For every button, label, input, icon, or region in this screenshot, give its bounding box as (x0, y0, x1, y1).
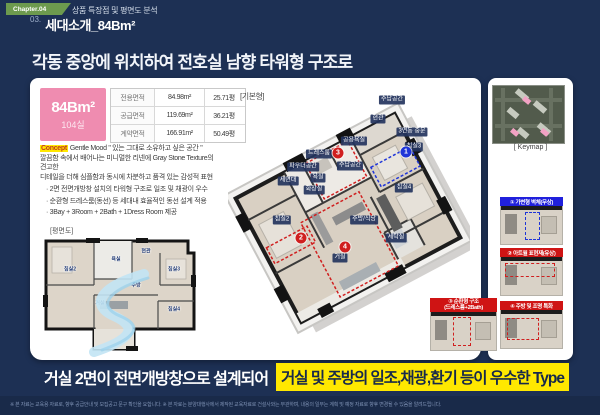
keymap-drawing (493, 86, 564, 143)
room-label-2d: 거실 (95, 300, 104, 307)
concept-lines: 깔끔함 속에서 배어나는 미니멀한 리넨에 Gray Stone Texture… (40, 154, 258, 183)
concept-tag: Concept (40, 145, 68, 152)
number-badge: 2 (296, 233, 307, 244)
callout-4: ④ 주방 및 조명 특화 (500, 301, 563, 349)
concept-first-line: ConceptGentle Mood " 있는 그대로 소유하고 싶은 공간 " (40, 144, 258, 154)
area-row: 계약면적 166.91m² 50.49평 (111, 124, 245, 142)
room-label-2d: 주방 (131, 282, 140, 289)
section-title: 세대소개_84Bm² (45, 18, 135, 33)
callout-4-title: ④ 주방 및 조명 특화 (500, 301, 563, 310)
room-label-2d: 현관 (141, 248, 150, 255)
slide-headline: 각동 중앙에 위치하여 전호실 남향 타워형 구조로 (32, 48, 352, 73)
bottom-summary-plain: 거실 2면이 전면개방창으로 설계되어 (44, 365, 268, 389)
callout-4-thumbnail (500, 310, 563, 349)
area-table: 전용면적 84.98m² 25.71평 공급면적 119.69m² 36.21평… (110, 88, 246, 143)
concept-line: 견고한 (40, 163, 258, 173)
area-row: 전용면적 84.98m² 25.71평 (111, 89, 245, 106)
area-sqm: 119.69m² (155, 107, 205, 124)
area-label: 전용면적 (111, 89, 155, 106)
slide: Chapter.04 상품 특장점 및 평면도 분석 03.세대소개_84Bm²… (0, 0, 600, 415)
concept-block: ConceptGentle Mood " 있는 그대로 소유하고 싶은 공간 "… (40, 144, 258, 218)
number-badge: 1 (401, 147, 412, 158)
side-panel: [ Keymap ] ① 가변형 벽체(무상) ② 아트월 표현재(유상) ④ … (488, 78, 573, 360)
concept-bullet: · 2면 전면개방창 설치의 타워형 구조로 일조 및 채광이 우수 (46, 185, 258, 195)
callout-1: ① 가변형 벽체(무상) (500, 197, 563, 245)
area-row: 공급면적 119.69m² 36.21평 (111, 106, 245, 124)
floorplan-2d-labels: 침실2욕실현관침실3주방거실침실4 (36, 235, 202, 357)
concept-bullet: · 순환형 드레스룸(동선) 등 세대내 효율적인 동선 설계 적용 (46, 197, 258, 207)
callout-2-thumbnail (500, 257, 563, 296)
section-heading: 03.세대소개_84Bm² (30, 15, 135, 35)
keymap-caption: [ Keymap ] (488, 144, 573, 151)
footer-disclaimer: ※ 본 자료는 교육용 자료로, 향후 공급안내 및 모집공고 문구 확인을 요… (10, 401, 594, 408)
callout-3: ③ 순환형 구조 (드레스룸+2Bath) (430, 298, 497, 351)
callout-3-title: ③ 순환형 구조 (드레스룸+2Bath) (430, 298, 497, 312)
callout-1-thumbnail (500, 206, 563, 245)
floorplan-2d: 침실2욕실현관침실3주방거실침실4 (36, 235, 202, 357)
main-panel: 84Bm² 104실 전용면적 84.98m² 25.71평 공급면적 119.… (30, 78, 481, 360)
number-badge: 4 (340, 242, 351, 253)
bottom-summary: 거실 2면이 전면개방창으로 설계되어 거실 및 주방의 일조,채광,환기 등이… (44, 363, 569, 391)
keymap-image (492, 85, 565, 144)
concept-head: Gentle Mood " 있는 그대로 소유하고 싶은 공간 " (70, 145, 202, 152)
room-label-2d: 침실4 (168, 306, 180, 313)
unit-name: 84Bm² (51, 99, 94, 116)
room-label-2d: 침실3 (168, 266, 180, 273)
bottom-summary-highlight: 거실 및 주방의 일조,채광,환기 등이 우수한 Type (276, 363, 569, 391)
number-badge: 3 (333, 148, 344, 159)
concept-bullet: · 3Bay + 3Room + 2Bath + 1Dress Room 제공 (46, 208, 258, 218)
room-label-2d: 침실2 (64, 266, 76, 273)
callout-3-title-line2: (드레스룸+2Bath) (444, 305, 483, 312)
room-label-2d: 욕실 (111, 256, 120, 263)
callout-3-thumbnail (430, 312, 497, 351)
area-label: 계약면적 (111, 125, 155, 142)
section-number: 03. (30, 15, 41, 24)
callout-2: ② 아트월 표현재(유상) (500, 248, 563, 296)
chapter-badge: Chapter.04 (6, 3, 71, 15)
area-sqm: 84.98m² (155, 89, 205, 106)
concept-line: 깔끔함 속에서 배어나는 미니멀한 리넨에 Gray Stone Texture… (40, 154, 258, 164)
callout-1-title: ① 가변형 벽체(무상) (500, 197, 563, 206)
area-sqm: 166.91m² (155, 125, 205, 142)
unit-count: 104실 (61, 118, 84, 131)
concept-line: 디테일을 더해 심플함과 동시에 차분하고 품격 있는 감성적 표현 (40, 173, 258, 183)
area-label: 공급면적 (111, 107, 155, 124)
unit-type-box: 84Bm² 104실 (40, 88, 106, 141)
concept-bullets: · 2면 전면개방창 설치의 타워형 구조로 일조 및 채광이 우수· 순환형 … (40, 185, 258, 218)
callout-2-title: ② 아트월 표현재(유상) (500, 248, 563, 257)
